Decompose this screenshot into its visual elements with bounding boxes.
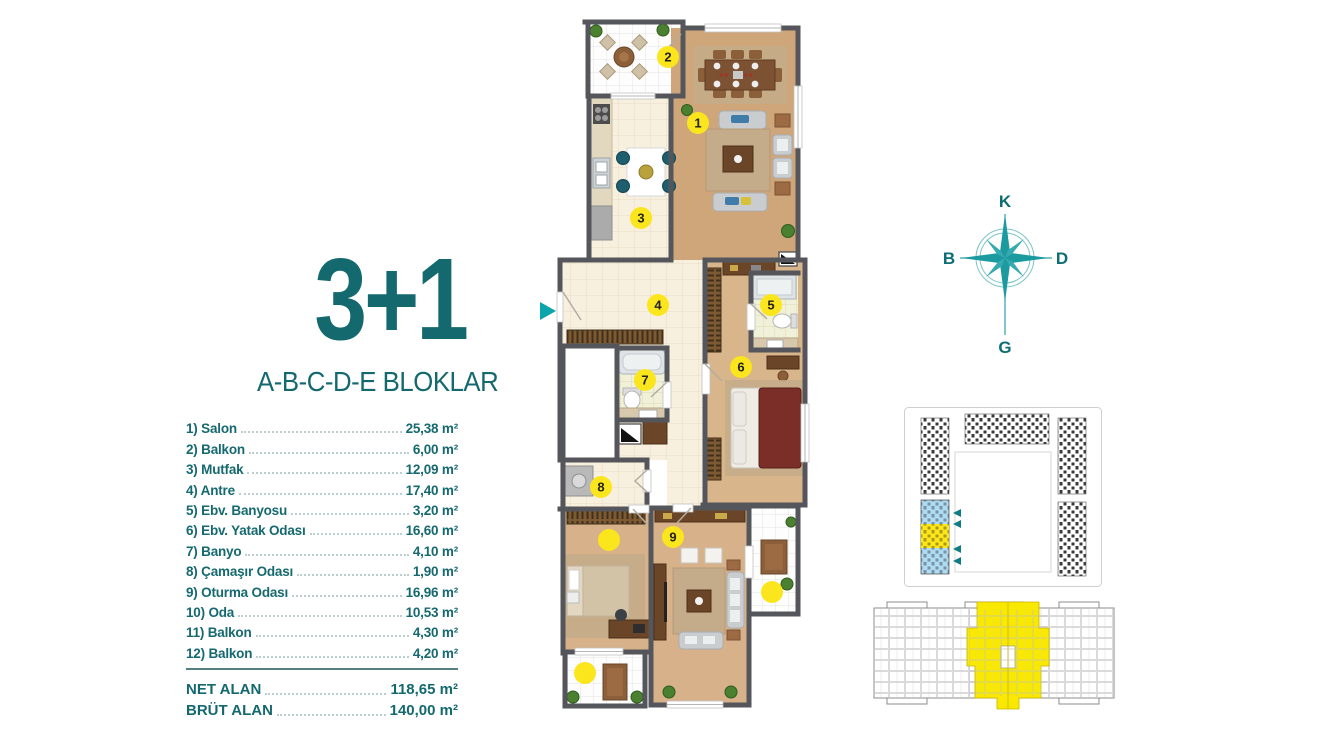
leader-dots: [277, 713, 386, 716]
compass-west-label: B: [943, 249, 955, 268]
room-area: 6,00 m²: [413, 442, 458, 457]
compass-star-icon: [960, 214, 1052, 335]
blocks-subtitle: A-B-C-D-E BLOKLAR: [257, 366, 465, 398]
svg-text:3: 3: [637, 211, 644, 226]
room-row: 10) Oda10,53 m²: [186, 600, 458, 620]
leader-dots: [297, 573, 409, 576]
leader-dots: [247, 471, 401, 474]
room-marker-9: 9: [662, 526, 684, 548]
room-area: 4,10 m²: [413, 544, 458, 559]
room-row: 2) Balkon6,00 m²: [186, 436, 458, 456]
room-row: 8) Çamaşır Odası1,90 m²: [186, 559, 458, 579]
compass-rose: K D G B: [940, 192, 1070, 357]
room-marker-7: 7: [634, 369, 656, 391]
bedroom10-furniture: [565, 554, 649, 638]
floor-overview-highlight: [967, 602, 1049, 709]
room-marker-2: 2: [657, 46, 679, 68]
room-marker-3: 3: [630, 207, 652, 229]
compass-north-label: K: [999, 192, 1012, 211]
leader-dots: [265, 692, 386, 695]
leader-dots: [256, 655, 409, 658]
room-row: 9) Oturma Odası16,96 m²: [186, 579, 458, 599]
room-label: 8) Çamaşır Odası: [186, 564, 293, 579]
room-row: 5) Ebv. Banyosu3,20 m²: [186, 498, 458, 518]
room-area: 12,09 m²: [406, 462, 458, 477]
room-area: 4,30 m²: [413, 625, 458, 640]
room-area: 17,40 m²: [406, 483, 458, 498]
room-row: 12) Balkon4,20 m²: [186, 640, 458, 660]
room-marker-10: [598, 529, 620, 551]
totals-divider: [186, 668, 458, 670]
room-marker-5: 5: [760, 294, 782, 316]
room-row: 1) Salon25,38 m²: [186, 416, 458, 436]
apartment-type-title: 3+1: [300, 240, 480, 365]
room-label: 2) Balkon: [186, 442, 245, 457]
room-area: 16,60 m²: [406, 523, 458, 538]
compass-south-label: G: [998, 338, 1011, 357]
room-row: 11) Balkon4,30 m²: [186, 620, 458, 640]
room-label: 12) Balkon: [186, 646, 252, 661]
room-row: 6) Ebv. Yatak Odası16,60 m²: [186, 518, 458, 538]
room-area: 16,96 m²: [406, 585, 458, 600]
net-area-label: NET ALAN: [186, 681, 261, 698]
compass-east-label: D: [1056, 249, 1068, 268]
brut-area-label: BRÜT ALAN: [186, 702, 273, 719]
room-marker-6: 6: [730, 356, 752, 378]
brut-area-value: 140,00 m²: [390, 702, 458, 719]
svg-text:2: 2: [664, 50, 671, 65]
room-label: 3) Mutfak: [186, 462, 243, 477]
room-area: 1,90 m²: [413, 564, 458, 579]
room-row: 4) Antre17,40 m²: [186, 477, 458, 497]
site-plan: [903, 406, 1103, 588]
room-label: 5) Ebv. Banyosu: [186, 503, 287, 518]
room-marker-11: [761, 581, 783, 603]
svg-text:8: 8: [597, 480, 604, 495]
room-label: 11) Balkon: [186, 625, 252, 640]
room-label: 4) Antre: [186, 483, 235, 498]
room-marker-12: [574, 662, 596, 684]
leader-dots: [256, 634, 409, 637]
net-area-value: 118,65 m²: [390, 681, 458, 698]
room-area: 4,20 m²: [413, 646, 458, 661]
site-plan-highlighted-block: [921, 500, 949, 574]
room-row: 7) Banyo4,10 m²: [186, 538, 458, 558]
leader-dots: [291, 512, 409, 515]
svg-text:7: 7: [641, 373, 648, 388]
floor-plan: 1 2 3 4 5 6 7 8 9: [555, 8, 815, 722]
room-label: 10) Oda: [186, 605, 234, 620]
room-label: 6) Ebv. Yatak Odası: [186, 523, 306, 538]
leader-dots: [241, 430, 402, 433]
leader-dots: [239, 492, 402, 495]
floor-overview: [873, 594, 1115, 714]
svg-text:5: 5: [767, 298, 774, 313]
leader-dots: [310, 532, 402, 535]
room-area: 3,20 m²: [413, 503, 458, 518]
room-label: 9) Oturma Odası: [186, 585, 288, 600]
room-area: 10,53 m²: [406, 605, 458, 620]
room-row: 3) Mutfak12,09 m²: [186, 457, 458, 477]
area-totals: NET ALAN118,65 m² BRÜT ALAN140,00 m²: [186, 668, 458, 719]
svg-text:4: 4: [654, 298, 662, 313]
svg-text:1: 1: [694, 116, 701, 131]
entrance-arrow-icon: [540, 302, 556, 320]
room-label: 1) Salon: [186, 421, 237, 436]
room-area: 25,38 m²: [406, 421, 458, 436]
room-label: 7) Banyo: [186, 544, 241, 559]
net-area-row: NET ALAN118,65 m²: [186, 676, 458, 698]
svg-text:6: 6: [737, 360, 744, 375]
svg-text:9: 9: [669, 530, 676, 545]
room-marker-4: 4: [647, 294, 669, 316]
brut-area-row: BRÜT ALAN140,00 m²: [186, 698, 458, 720]
leader-dots: [238, 614, 401, 617]
room-marker-1: 1: [687, 112, 709, 134]
room-marker-8: 8: [590, 476, 612, 498]
leader-dots: [245, 553, 408, 556]
leader-dots: [249, 451, 409, 454]
laundry-fixtures: [565, 466, 593, 496]
room-list: 1) Salon25,38 m² 2) Balkon6,00 m² 3) Mut…: [186, 416, 458, 661]
brochure-page: 3+1 A-B-C-D-E BLOKLAR 1) Salon25,38 m² 2…: [0, 0, 1319, 736]
leader-dots: [292, 594, 402, 597]
